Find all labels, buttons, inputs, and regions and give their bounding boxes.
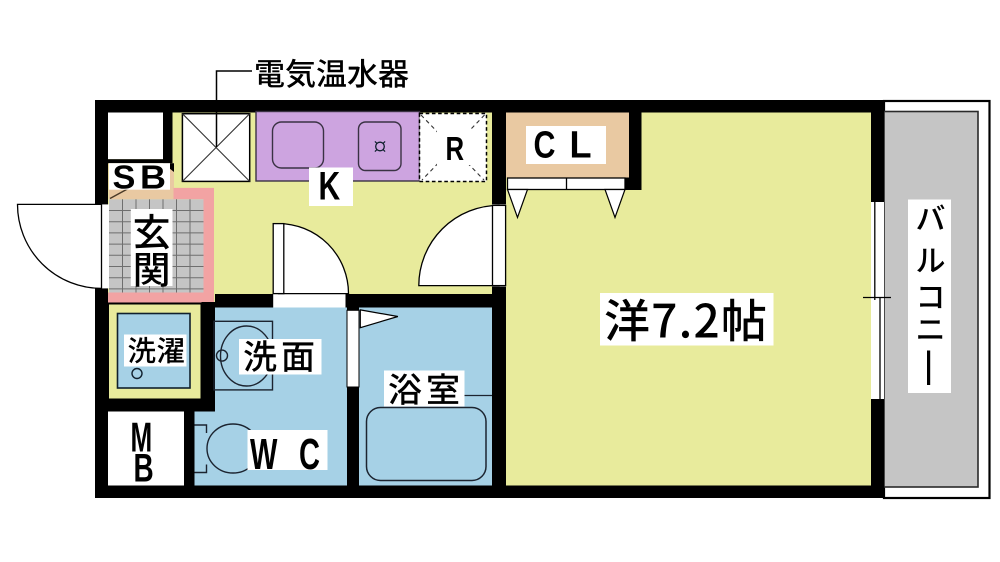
svg-text:C: C [534,124,556,166]
svg-text:L: L [570,123,592,166]
svg-text:W: W [250,429,278,479]
svg-text:S: S [113,160,136,196]
svg-text:R: R [446,131,465,168]
svg-text:B: B [134,447,154,491]
svg-text:K: K [319,164,341,208]
svg-text:B: B [140,160,166,196]
svg-text:C: C [299,429,320,479]
